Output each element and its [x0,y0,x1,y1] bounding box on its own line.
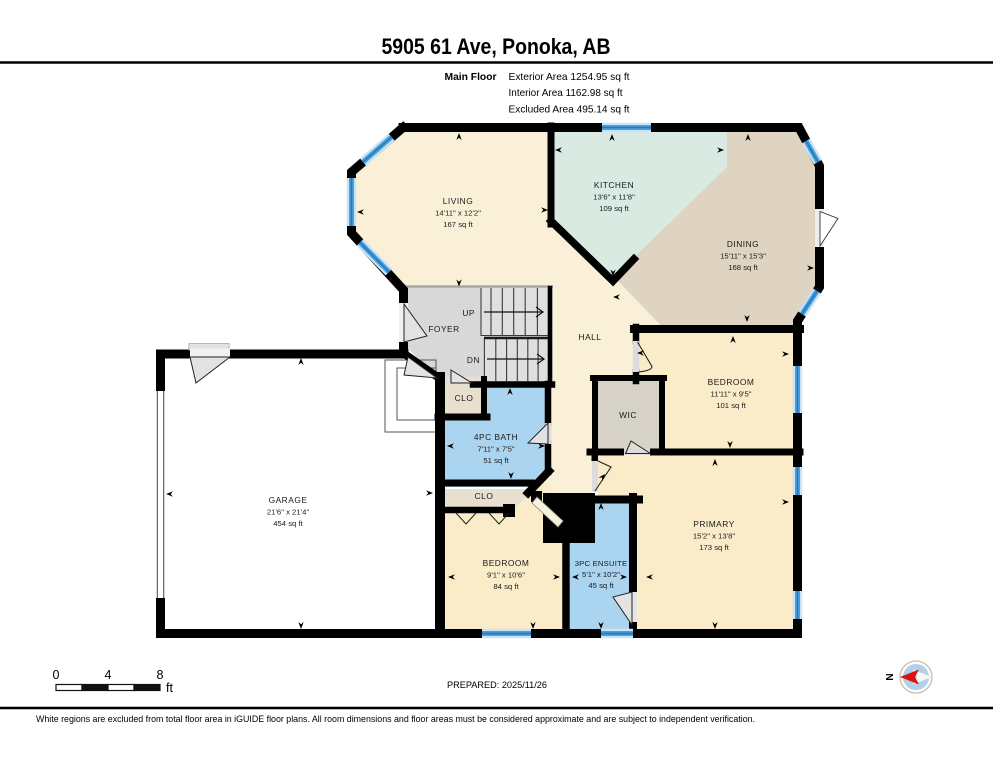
svg-text:15'11" x 15'3": 15'11" x 15'3" [720,252,766,261]
svg-text:101 sq ft: 101 sq ft [716,401,746,410]
svg-text:KITCHEN: KITCHEN [594,180,634,190]
svg-text:Interior Area 1162.98 sq ft: Interior Area 1162.98 sq ft [509,88,623,99]
svg-text:Main Floor: Main Floor [445,72,497,83]
svg-text:BEDROOM: BEDROOM [483,558,530,568]
svg-text:ft: ft [166,681,173,695]
svg-text:13'6" x 11'8": 13'6" x 11'8" [593,193,635,202]
svg-text:N: N [885,673,896,680]
svg-text:4: 4 [105,668,112,682]
svg-text:14'11" x 12'2": 14'11" x 12'2" [435,209,481,218]
svg-text:109 sq ft: 109 sq ft [599,204,629,213]
svg-text:45 sq ft: 45 sq ft [588,581,614,590]
svg-text:167 sq ft: 167 sq ft [443,220,473,229]
svg-text:PRIMARY: PRIMARY [693,519,735,529]
svg-text:7'11" x 7'5": 7'11" x 7'5" [477,445,515,454]
svg-text:Excluded Area 495.14 sq ft: Excluded Area 495.14 sq ft [509,104,630,115]
svg-text:BEDROOM: BEDROOM [708,377,755,387]
svg-text:8: 8 [157,668,164,682]
svg-text:GARAGE: GARAGE [269,495,308,505]
svg-text:21'6" x 21'4": 21'6" x 21'4" [267,508,309,517]
svg-text:DINING: DINING [727,239,759,249]
svg-text:HALL: HALL [579,332,602,342]
svg-text:173 sq ft: 173 sq ft [699,543,729,552]
svg-text:PREPARED: 2025/11/26: PREPARED: 2025/11/26 [447,679,547,690]
svg-text:4PC BATH: 4PC BATH [474,432,518,442]
svg-text:5'1" x 10'2": 5'1" x 10'2" [582,570,620,579]
svg-text:CLO: CLO [475,491,494,501]
svg-text:FOYER: FOYER [428,324,459,334]
svg-text:UP: UP [462,308,475,318]
svg-text:WIC: WIC [619,410,637,420]
svg-text:84 sq ft: 84 sq ft [493,582,519,591]
svg-text:CLO: CLO [455,393,474,403]
svg-text:DN: DN [467,355,480,365]
svg-text:454 sq ft: 454 sq ft [273,519,303,528]
svg-text:51 sq ft: 51 sq ft [483,456,509,465]
svg-text:White regions are excluded fro: White regions are excluded from total fl… [36,714,755,724]
svg-text:3PC ENSUITE: 3PC ENSUITE [575,559,628,568]
svg-text:5905 61 Ave, Ponoka, AB: 5905 61 Ave, Ponoka, AB [382,34,611,59]
svg-text:0: 0 [53,668,60,682]
svg-text:Exterior Area 1254.95 sq ft: Exterior Area 1254.95 sq ft [509,72,630,83]
svg-text:168 sq ft: 168 sq ft [728,263,758,272]
svg-text:9'1" x 10'6": 9'1" x 10'6" [487,571,525,580]
svg-text:15'2" x 13'8": 15'2" x 13'8" [693,532,735,541]
svg-text:11'11" x 9'5": 11'11" x 9'5" [710,390,751,399]
svg-text:LIVING: LIVING [443,196,473,206]
